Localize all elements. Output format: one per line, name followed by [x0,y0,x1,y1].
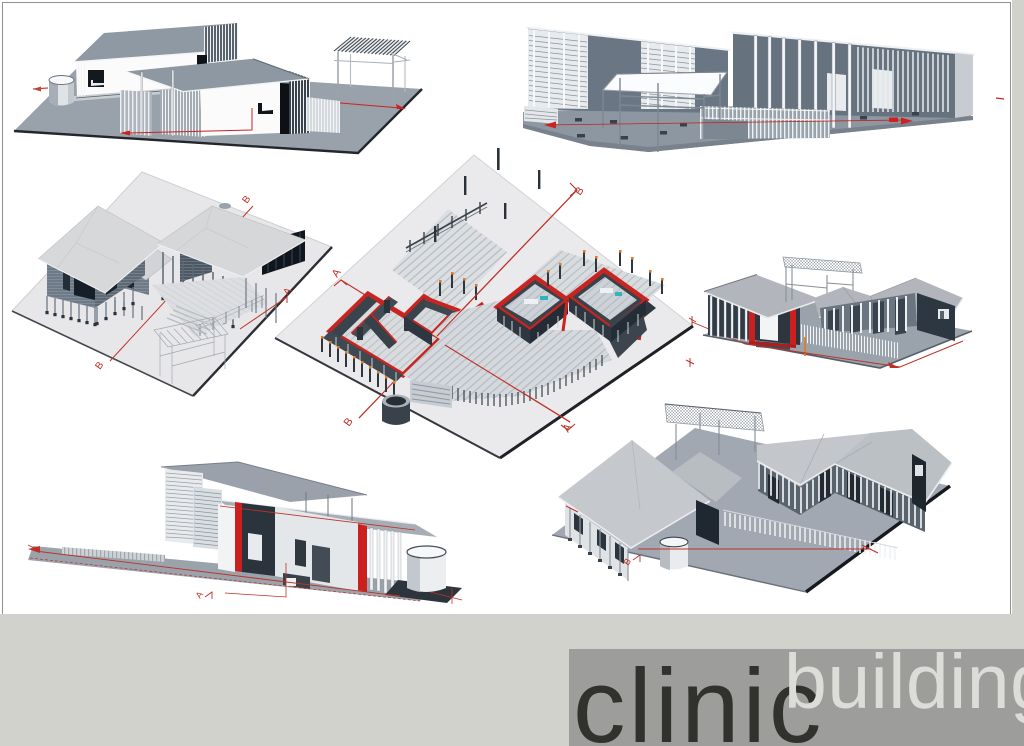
svg-text:building: building [784,639,1024,725]
